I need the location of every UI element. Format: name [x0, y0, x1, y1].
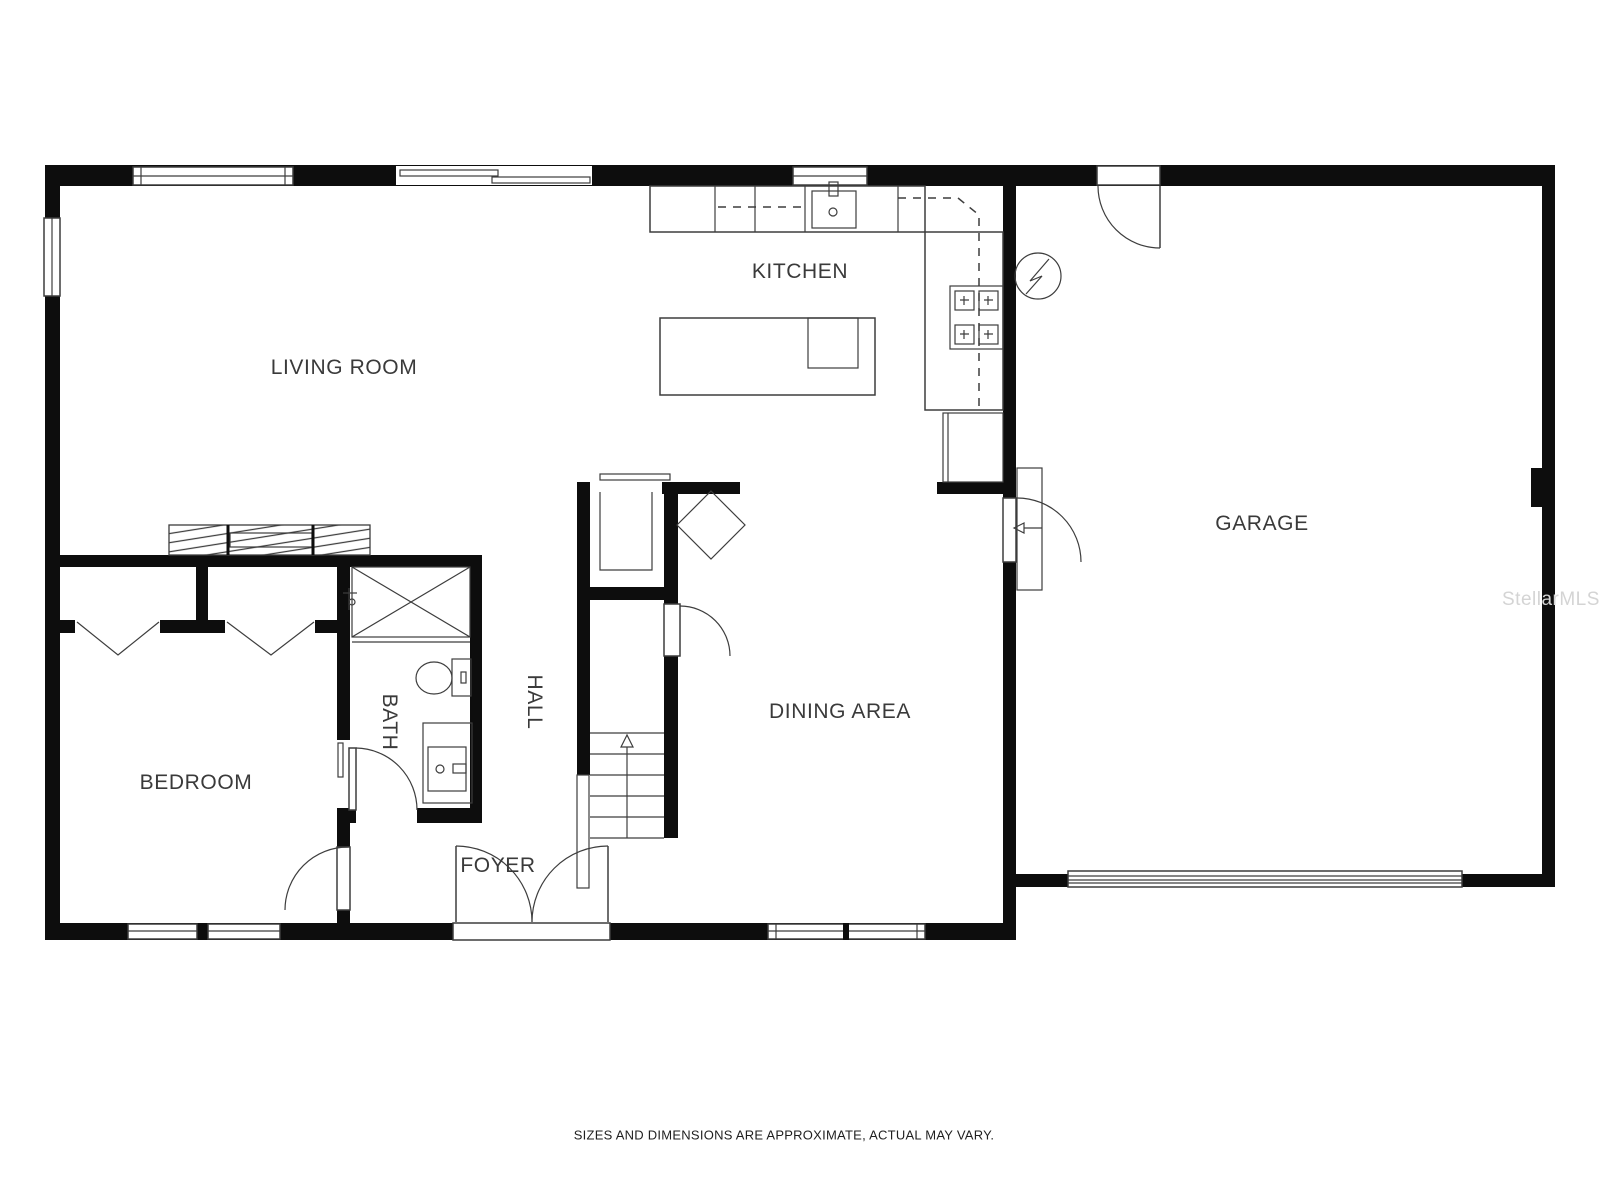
bath-vanity	[423, 723, 472, 803]
shower	[343, 567, 470, 642]
upper-cabinets-dashed-corner	[898, 198, 979, 410]
room-label-foyer: FOYER	[460, 854, 535, 878]
corner-fireplace	[677, 491, 745, 559]
room-label-garage: GARAGE	[1215, 512, 1308, 536]
stellar-mls-watermark: StellarMLS	[1502, 589, 1600, 611]
stair-railing	[577, 775, 589, 888]
garage-overhead-door	[1068, 871, 1462, 887]
garage-wall-pilaster	[1531, 468, 1542, 507]
burners	[955, 291, 998, 344]
bath-fixtures	[343, 567, 472, 803]
stairs-up-arrow-icon	[621, 735, 633, 747]
room-label-hall: HALL	[522, 675, 546, 730]
disclaimer-text: SIZES AND DIMENSIONS ARE APPROXIMATE, AC…	[574, 1128, 994, 1143]
room-label-dining-area: DINING AREA	[769, 700, 911, 724]
kitchen-island	[660, 318, 875, 395]
electrical-panel-icon	[1015, 253, 1061, 299]
toilet	[416, 659, 471, 696]
kitchen-counter-top	[650, 186, 925, 232]
bath-door	[349, 748, 417, 810]
floor-plan: LIVING ROOM KITCHEN GARAGE DINING AREA B…	[0, 0, 1600, 1200]
staircase	[577, 474, 670, 888]
understair-closet	[600, 492, 652, 570]
fireplace-hearth	[169, 525, 370, 555]
living-room-sliding-door	[396, 166, 592, 185]
garage-top-door	[1097, 166, 1160, 248]
misc-symbols	[169, 253, 1061, 559]
living-room-top-window	[133, 167, 293, 185]
kitchen-counter-east	[925, 232, 1003, 410]
bedroom-door	[285, 847, 350, 910]
dining-window	[768, 923, 925, 940]
stove	[950, 286, 1003, 349]
stair-treads	[590, 733, 664, 838]
floor-plan-drawing	[0, 0, 1600, 1200]
refrigerator	[943, 413, 1003, 482]
room-label-kitchen: KITCHEN	[752, 260, 848, 284]
kitchen-fixtures	[650, 182, 1003, 482]
stair-opening-header	[600, 474, 670, 480]
living-room-left-window	[44, 218, 60, 296]
stair-closet-door	[664, 604, 730, 656]
room-label-bedroom: BEDROOM	[140, 771, 253, 795]
kitchen-sink	[812, 182, 856, 228]
bath-pocket-panel	[338, 743, 343, 777]
room-label-living-room: LIVING ROOM	[271, 356, 418, 380]
room-label-bath: BATH	[377, 694, 401, 751]
